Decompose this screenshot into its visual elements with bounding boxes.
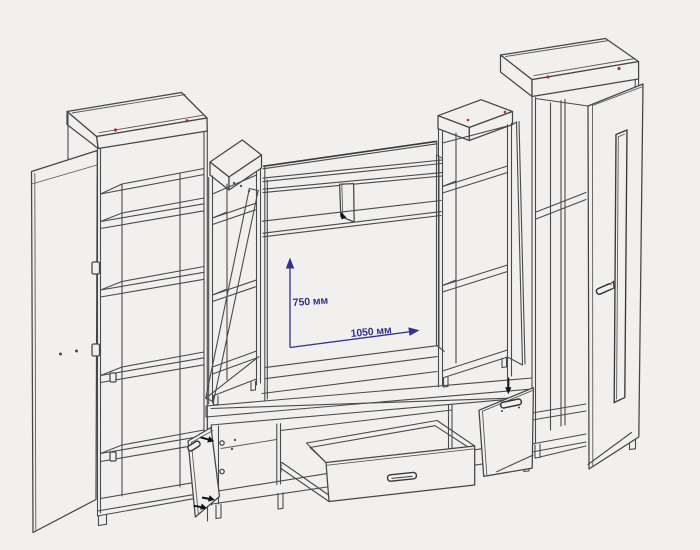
svg-text:750 мм: 750 мм [292, 295, 328, 309]
